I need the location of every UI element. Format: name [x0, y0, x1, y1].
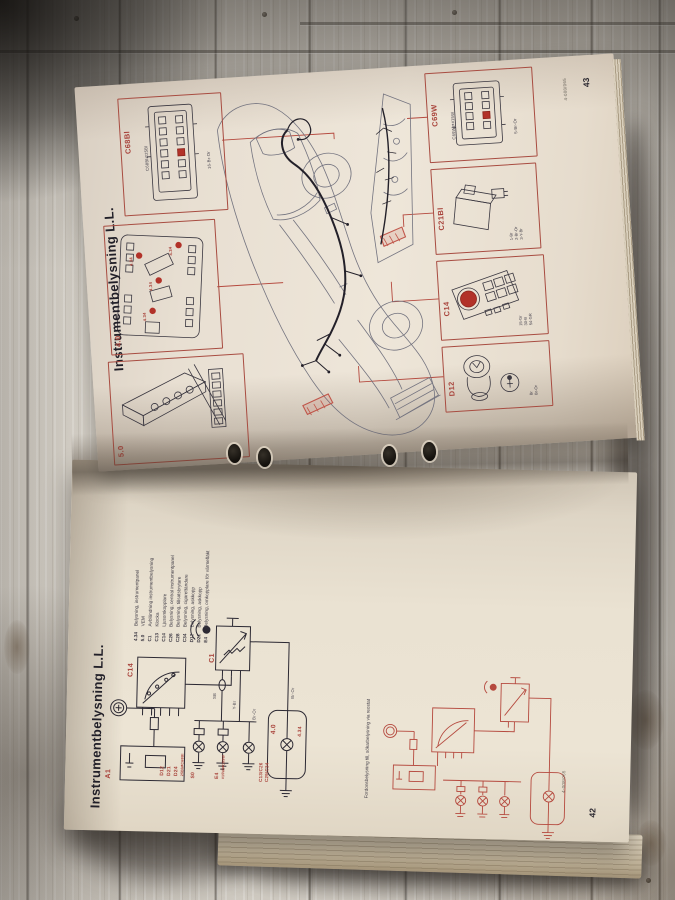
label-br-or: Br-Or: [291, 687, 296, 698]
callout-c68bl: [117, 92, 228, 216]
dot-label-4-34: 4.34: [143, 312, 148, 321]
label-d24: D24: [174, 766, 179, 776]
callout-c14-wires: 15-Gr 30-B 54-GR: [518, 313, 534, 326]
wood-knot: [4, 620, 30, 674]
callout-c21bl-label: C21Bl: [437, 207, 446, 231]
photo-scene: Instrumentbelysning L.L. 4.34Belysning, …: [0, 0, 675, 900]
label-c14: C14: [127, 663, 135, 677]
label-d21: D21: [167, 766, 172, 776]
callout-c14: [436, 254, 549, 341]
dot-label-4-34: 4.34: [149, 282, 154, 291]
manual-page-42: Instrumentbelysning L.L. 4.34Belysning, …: [64, 460, 637, 843]
label-y-br: Y-Br: [233, 701, 238, 710]
callout-c21bl: [430, 162, 541, 254]
callout-c69w-wire: 5-Br-Or: [513, 118, 518, 134]
plank-groove: [26, 0, 30, 900]
callout-d12: [441, 340, 553, 413]
callout-d12-label: D12: [448, 381, 457, 396]
label-sb: SB: [213, 693, 218, 699]
callout-d12-wires: Br Br-Or: [528, 385, 539, 395]
callout-c68bl-label: C68Bl: [123, 131, 132, 155]
callout-c69w: [424, 67, 537, 164]
label-4-0: 4.0: [271, 724, 278, 734]
callout-c69w-label: C69W: [430, 104, 439, 127]
nail-dot: [452, 10, 457, 15]
component-legend: 4.34Belysning, instrumentpanel 5.0VEM C1…: [132, 465, 213, 643]
plank-seam: [0, 50, 675, 53]
label-c1: C1: [209, 653, 217, 663]
doc-code: 4-008/065: [562, 770, 567, 793]
callout-5-0-label: 5.0: [117, 445, 126, 457]
plank-seam: [300, 22, 675, 25]
label-4-34: 4.34: [298, 726, 303, 737]
callout-c14-label: C14: [443, 301, 452, 316]
nail-dot: [646, 878, 651, 883]
page-number-42: 42: [588, 808, 597, 818]
label-s0: S0: [191, 772, 196, 779]
label-e4: E4: [215, 772, 220, 779]
label-br-or: Br-Or: [252, 709, 257, 720]
label-e4-sub: #15W⇄C69W: [222, 755, 226, 779]
label-a1: A1: [105, 769, 113, 779]
plank-groove: [658, 0, 662, 900]
label-c29-c34: C29/C34: [265, 763, 270, 783]
manual-page-43: Instrumentbelysning L.L. C68Bl C68Bl⇄25B…: [74, 53, 637, 471]
callout-c21bl-wires: 1-Br 2-Br-Or 3-Y-Br: [508, 226, 524, 240]
label-d12: D12: [160, 766, 165, 776]
dot-label-4-34: 4.34: [169, 247, 174, 256]
nail-dot: [74, 16, 79, 21]
dot-label-4-34: 4.34: [129, 257, 134, 266]
page-number-43: 43: [582, 77, 591, 87]
label-d24-sub: 25Bl⇄C68Bl: [181, 753, 185, 776]
nail-dot: [262, 12, 267, 17]
callout-4-0-label: 4.0: [114, 335, 123, 347]
